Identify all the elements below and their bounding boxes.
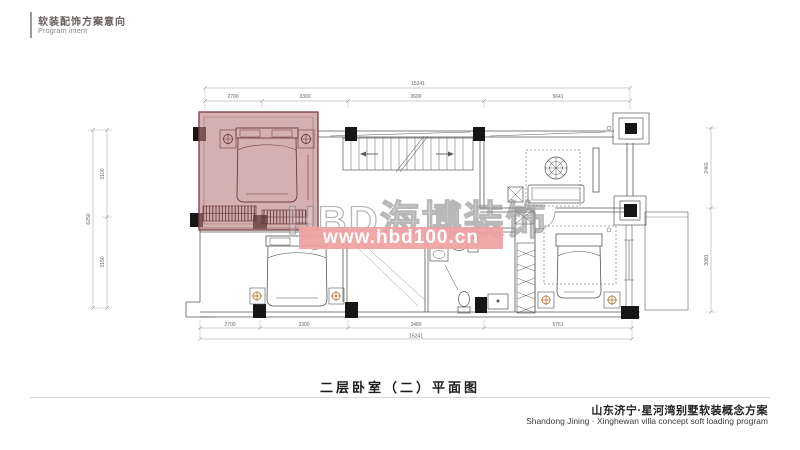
dim-right-seg-1: 2460: [704, 162, 710, 173]
dim-bottom-seg-4: 5761: [552, 322, 563, 328]
dim-bottom-seg-3: 3480: [410, 322, 421, 328]
dim-top-total: 15241: [411, 81, 425, 87]
bedroom-right-furniture: [538, 226, 620, 308]
terrace-column-top: [607, 113, 649, 144]
slide-page: 软装配饰方案意向 Program intent: [0, 0, 800, 450]
bedroom-left-lamps: [252, 291, 341, 301]
dim-top-seg-2: 3300: [299, 94, 310, 100]
dim-left-seg-1: 3100: [100, 168, 106, 179]
bathroom-fixtures: [430, 238, 508, 313]
staircase: [343, 136, 473, 172]
dim-top-seg-1: 2700: [227, 94, 238, 100]
plan-caption: 二层卧室（二）平面图: [0, 377, 800, 396]
dim-top-seg-4: 5641: [552, 94, 563, 100]
watermark-band: www.hbd100.cn: [299, 227, 503, 249]
watermark-url: www.hbd100.cn: [323, 227, 479, 249]
dim-top-seg-3: 3600: [410, 94, 421, 100]
dim-bottom-total: 15241: [409, 334, 423, 340]
project-title-en: Shandong Jining · Xinghewan villa concep…: [526, 416, 768, 426]
dim-bottom-seg-2: 3300: [298, 322, 309, 328]
dim-bottom-seg-1: 2700: [224, 322, 235, 328]
bedroom-right-lamps: [541, 295, 617, 305]
dim-right-seg-2: 3081: [704, 254, 710, 265]
dim-left-seg-2: 3150: [100, 256, 106, 267]
footer-divider: [30, 397, 770, 398]
dim-left-total: 6250: [86, 213, 92, 224]
